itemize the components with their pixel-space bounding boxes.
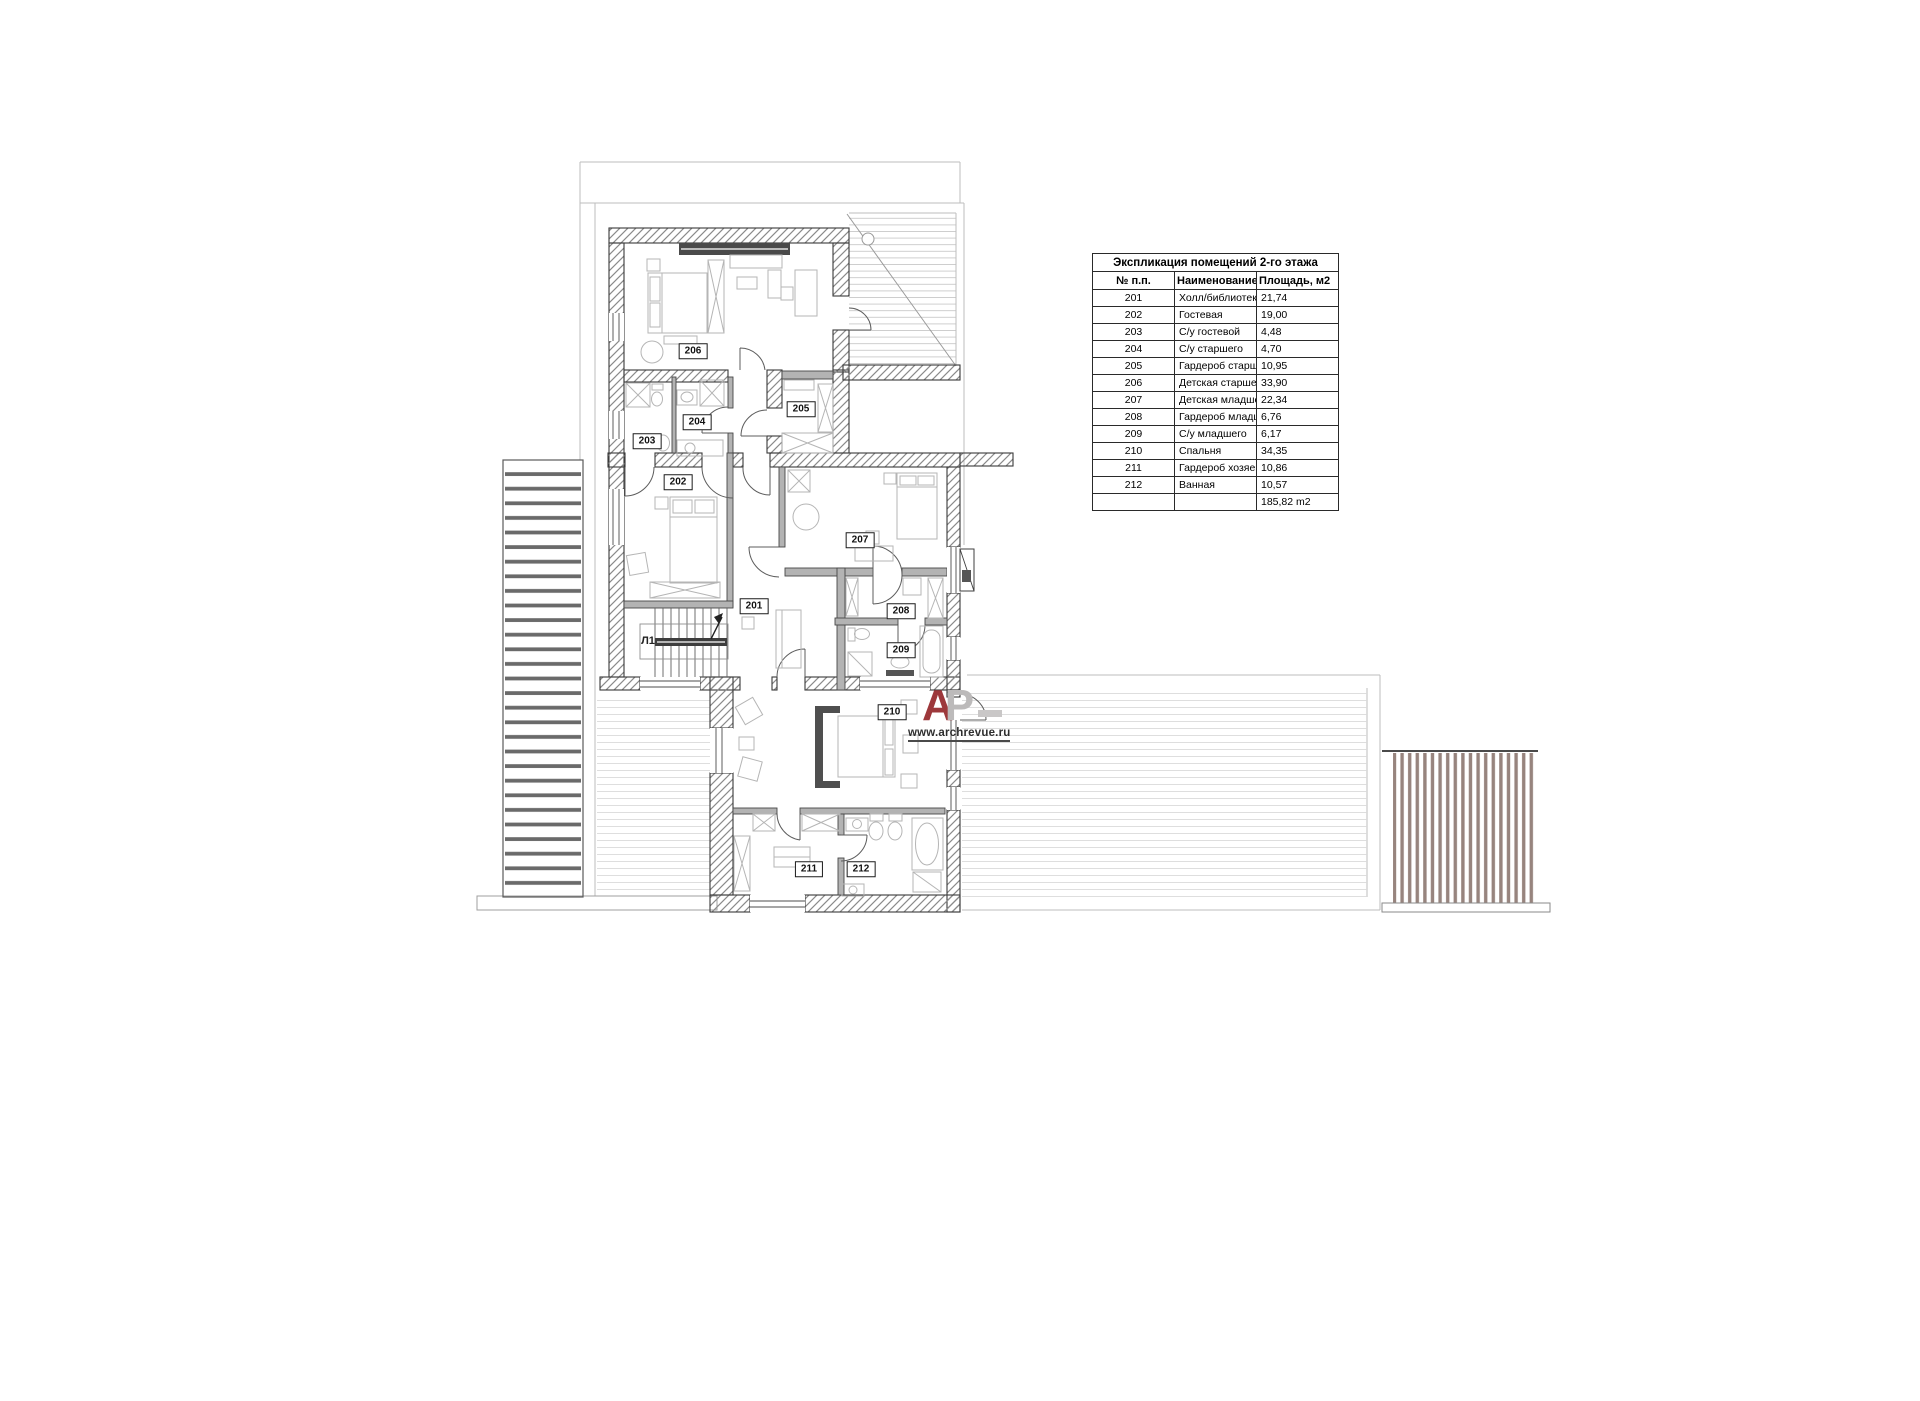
table-cell: Детская младшего [1175,392,1257,409]
furniture-room-206 [641,255,817,363]
table-cell [1175,494,1257,511]
table-cell: 34,35 [1257,443,1339,460]
furniture-room-202 [626,497,720,598]
table-cell: 202 [1093,307,1175,324]
table-cell [1093,494,1175,511]
room-label-202: 202 [664,474,693,490]
room-label-206: 206 [679,343,708,359]
col-header-name: Наименование [1175,272,1257,290]
table-row: 202Гостевая19,00 [1093,307,1339,324]
watermark-letter-p: Р [945,681,974,730]
table-body: 201Холл/библиотека21,74202Гостевая19,002… [1093,290,1339,511]
table-cell: Гардероб младшего [1175,409,1257,426]
table-cell: С/у старшего [1175,341,1257,358]
table-cell: С/у младшего [1175,426,1257,443]
table-cell: Спальня [1175,443,1257,460]
roof-terrace [847,213,956,366]
table-cell: 212 [1093,477,1175,494]
table-cell: 201 [1093,290,1175,307]
table-cell: 4,70 [1257,341,1339,358]
table-cell: Ванная [1175,477,1257,494]
table-cell: 203 [1093,324,1175,341]
table-cell: 22,34 [1257,392,1339,409]
table-row: 204С/у старшего4,70 [1093,341,1339,358]
room-label-209: 209 [887,642,916,658]
table-cell: Гардероб старшего [1175,358,1257,375]
watermark-url: www.archrevue.ru [908,728,1010,742]
table-row: 209С/у младшего6,17 [1093,426,1339,443]
table-cell: 21,74 [1257,290,1339,307]
table-cell: Детская старшего [1175,375,1257,392]
room-label-203: 203 [633,433,662,449]
room-label-210: 210 [878,704,907,720]
table-cell: 10,95 [1257,358,1339,375]
watermark-logo: АР www.archrevue.ru [922,684,974,728]
col-header-area: Площадь, м2 [1257,272,1339,290]
room-label-201: 201 [740,598,769,614]
table-cell: 10,57 [1257,477,1339,494]
table-row: 212Ванная10,57 [1093,477,1339,494]
table-cell: Гардероб хозяев [1175,460,1257,477]
floor-plan-canvas: 201 202 203 204 205 206 207 208 209 210 … [0,0,1920,1401]
room-label-204: 204 [683,414,712,430]
table-row: 205Гардероб старшего10,95 [1093,358,1339,375]
table-cell: Холл/библиотека [1175,290,1257,307]
table-cell: 185,82 m2 [1257,494,1339,511]
table-cell: 4,48 [1257,324,1339,341]
table-cell: 6,17 [1257,426,1339,443]
room-label-212: 212 [847,861,876,877]
furniture-room-211 [734,814,840,891]
table-cell: 10,86 [1257,460,1339,477]
room-label-211: 211 [795,861,823,877]
table-cell: 204 [1093,341,1175,358]
table-row: 208Гардероб младшего6,76 [1093,409,1339,426]
table-row: 210Спальня34,35 [1093,443,1339,460]
table-row: 203С/у гостевой4,48 [1093,324,1339,341]
col-header-number: № п.п. [1093,272,1175,290]
table-cell: 211 [1093,460,1175,477]
table-row: 206Детская старшего33,90 [1093,375,1339,392]
table-title: Экспликация помещений 2-го этажа [1093,254,1339,272]
balcony-box [960,549,974,591]
room-label-207: 207 [846,532,875,548]
table-row: 185,82 m2 [1093,494,1339,511]
room-label-205: 205 [787,401,816,417]
table-cell: 6,76 [1257,409,1339,426]
table-cell: 33,90 [1257,375,1339,392]
watermark-bar [978,710,1002,717]
table-cell: 206 [1093,375,1175,392]
table-cell: Гостевая [1175,307,1257,324]
explication-table: Экспликация помещений 2-го этажа № п.п. … [1092,253,1339,511]
pergola-left [503,460,583,897]
table-row: 211Гардероб хозяев10,86 [1093,460,1339,477]
table-row: 201Холл/библиотека21,74 [1093,290,1339,307]
table-cell: С/у гостевой [1175,324,1257,341]
table-cell: 209 [1093,426,1175,443]
room-label-208: 208 [887,603,916,619]
pergola-right [1382,751,1550,912]
table-cell: 19,00 [1257,307,1339,324]
stair-label: Л1 [641,635,655,647]
table-cell: 208 [1093,409,1175,426]
table-cell: 207 [1093,392,1175,409]
table-cell: 205 [1093,358,1175,375]
table-cell: 210 [1093,443,1175,460]
table-row: 207Детская младшего22,34 [1093,392,1339,409]
furniture-room-201 [742,610,801,668]
